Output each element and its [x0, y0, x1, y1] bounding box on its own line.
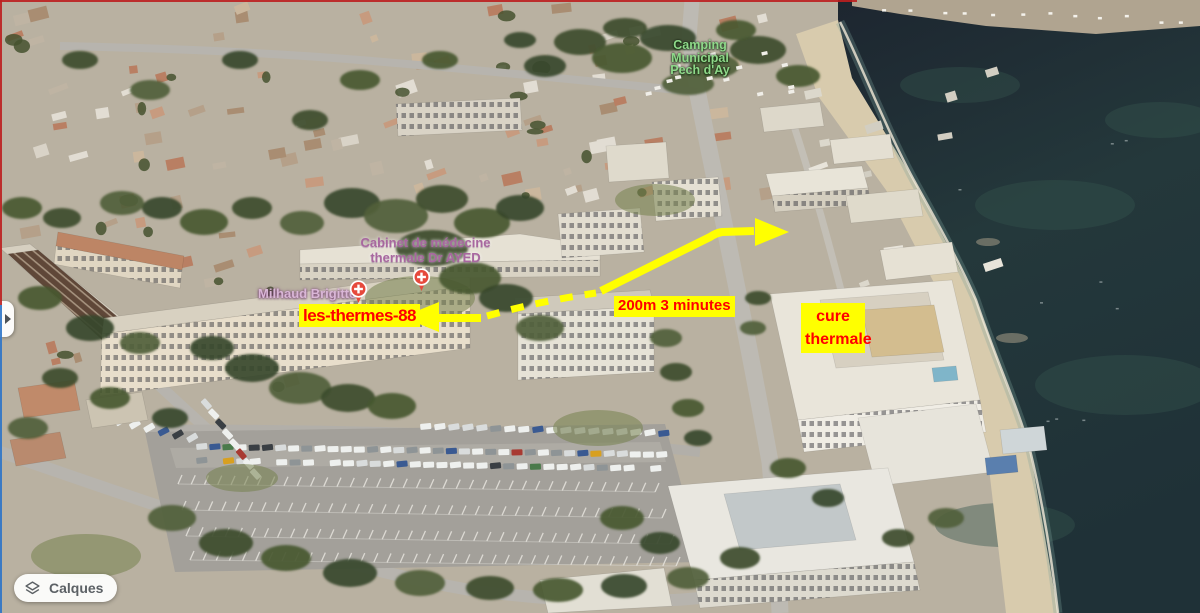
- poi-label-cabinet-line1: Cabinet de médecine: [358, 236, 493, 251]
- poi-label-camping[interactable]: Camping Municipal Pech d'Ay: [650, 39, 750, 77]
- medical-pin-icon[interactable]: [412, 268, 431, 292]
- medical-pin-icon[interactable]: [349, 280, 368, 304]
- poi-label-cabinet[interactable]: Cabinet de médecine thermale Dr AYED: [358, 236, 493, 265]
- layers-button[interactable]: Calques: [14, 574, 117, 602]
- expand-sidebar-icon: [5, 314, 11, 324]
- annotation-cure-line1: cure: [805, 305, 861, 328]
- annotation-route-info: 200m 3 minutes: [614, 296, 735, 317]
- layers-button-label: Calques: [49, 580, 103, 596]
- annotation-destination: les-thermes-88: [299, 304, 420, 327]
- annotation-cure-line2: thermale: [805, 328, 861, 351]
- expand-sidebar-tab[interactable]: [0, 301, 14, 337]
- aerial-imagery[interactable]: [0, 0, 1200, 613]
- poi-label-cabinet-line2: thermale Dr AYED: [358, 251, 493, 266]
- layers-icon: [24, 580, 41, 597]
- annotation-cure-thermale: cure thermale: [801, 303, 865, 353]
- poi-label-camping-line1: Camping: [650, 39, 750, 52]
- google-earth-view: Camping Municipal Pech d'Ay Cabinet de m…: [0, 0, 1200, 613]
- poi-label-camping-line3: Pech d'Ay: [650, 64, 750, 77]
- poi-label-milhaud[interactable]: Milhaud Brigitte: [258, 286, 356, 301]
